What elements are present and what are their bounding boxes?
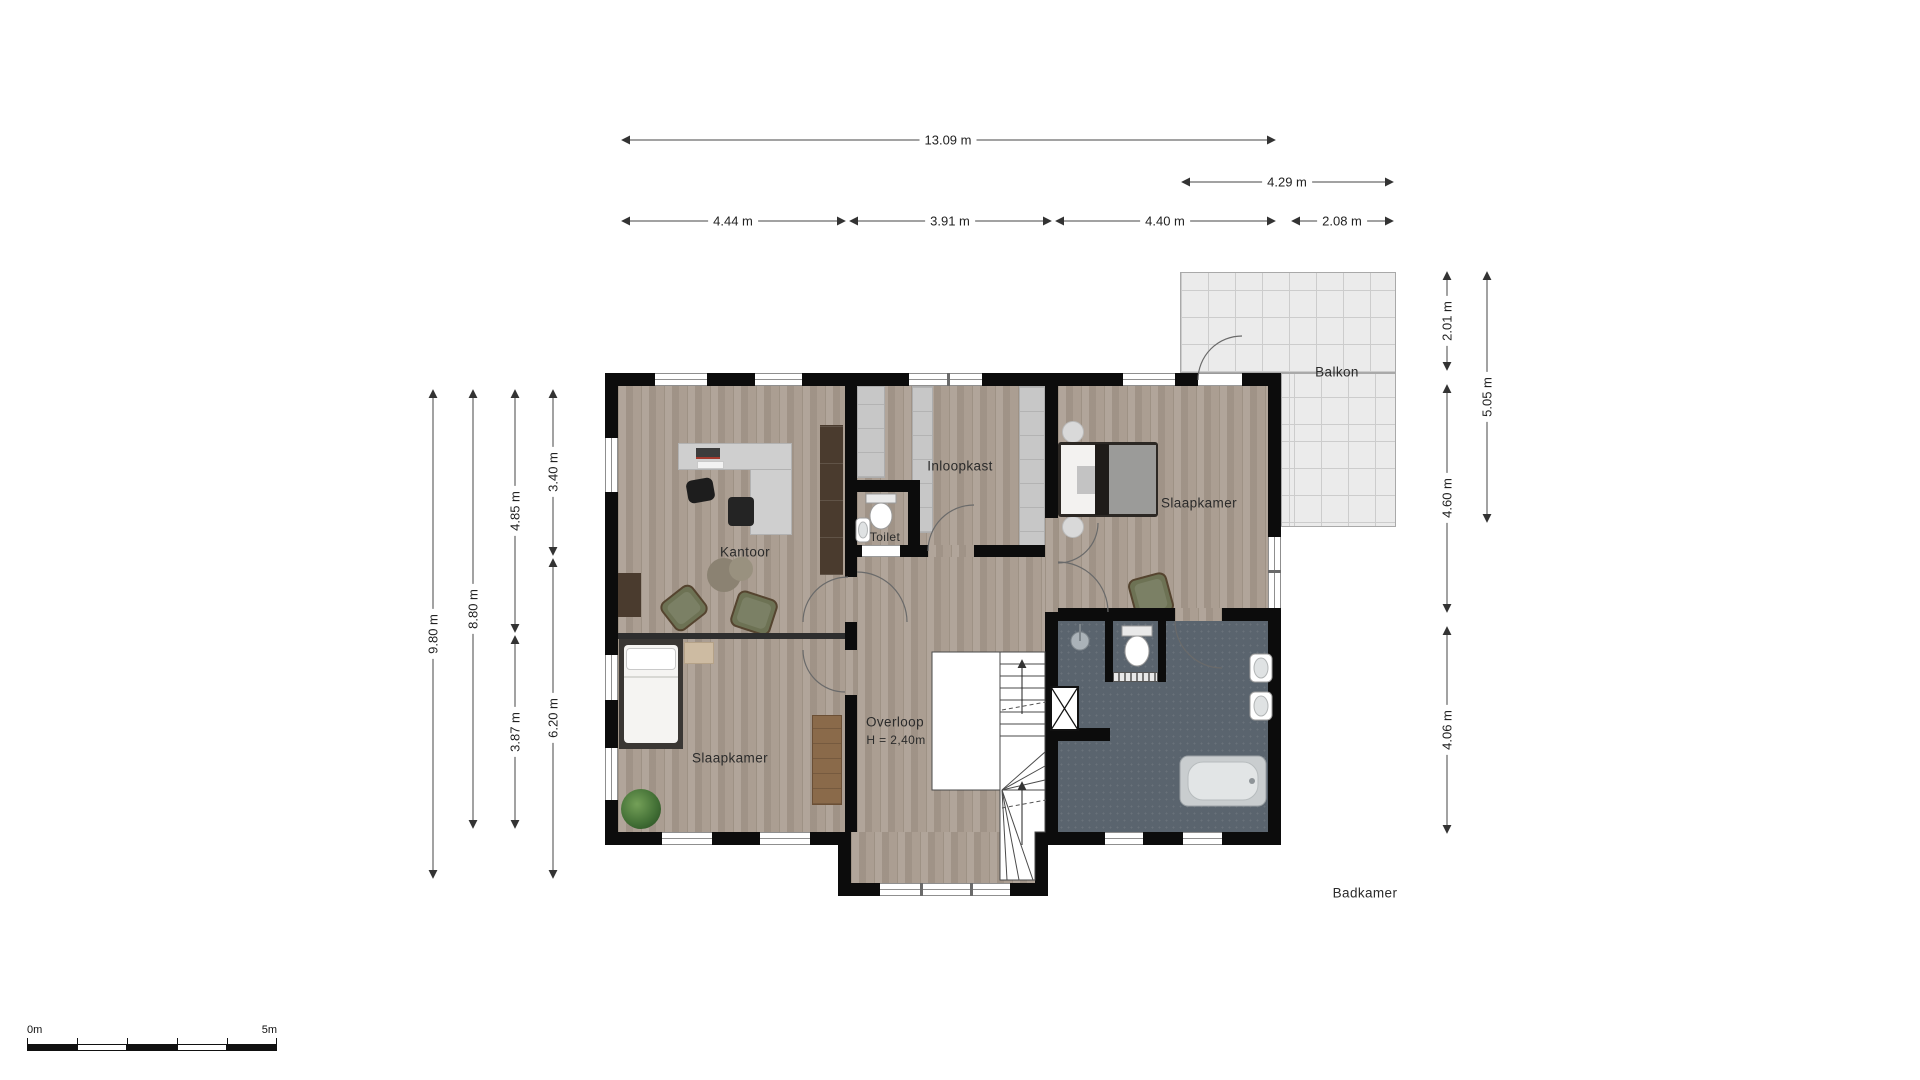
wall — [605, 832, 851, 845]
window — [605, 438, 618, 492]
wall — [974, 545, 1045, 557]
double-bed-headboard — [1095, 444, 1109, 515]
window — [760, 832, 810, 845]
cabinet — [820, 425, 843, 575]
floor-plan: Kantoor Toilet Inloopkast Slaapkamer Sla… — [0, 0, 1920, 1080]
window — [755, 373, 802, 386]
window — [1123, 373, 1175, 386]
wall — [900, 545, 920, 557]
room-label-slaapkamer-right: Slaapkamer — [1161, 496, 1237, 511]
dimension-label: 6.20 m — [546, 693, 561, 743]
stairwell — [1000, 790, 1045, 832]
office-chair — [685, 477, 716, 504]
dimension-label: 8.80 m — [466, 584, 481, 634]
wardrobe — [857, 386, 885, 478]
door-opening — [845, 650, 857, 695]
scale-start-label: 0m — [27, 1024, 42, 1036]
balcony-tiles — [1281, 373, 1396, 527]
sideboard — [618, 573, 641, 617]
dimension-label: 2.08 m — [1317, 214, 1367, 229]
room-label-inloopkast: Inloopkast — [927, 459, 993, 474]
toilet-door — [862, 545, 900, 557]
window — [1268, 537, 1281, 608]
dimension-label: 4.44 m — [708, 214, 758, 229]
window — [605, 748, 618, 800]
wall — [845, 695, 857, 832]
balcony-door-opening — [1198, 373, 1242, 386]
double-bed-blanket — [1077, 466, 1095, 494]
desk — [750, 469, 792, 535]
blanket-fold — [624, 676, 678, 678]
wall — [1058, 728, 1110, 741]
window — [880, 883, 1010, 896]
room-label-kantoor: Kantoor — [720, 545, 770, 560]
room-label-badkamer: Badkamer — [1333, 886, 1398, 901]
wall — [1105, 621, 1113, 682]
wall — [845, 622, 857, 650]
window — [655, 373, 707, 386]
room-label-toilet: Toilet — [870, 530, 900, 544]
room-label-overloop: Overloop — [866, 715, 924, 730]
bench — [684, 642, 714, 664]
wall — [1158, 621, 1166, 682]
dimension-label: 3.40 m — [546, 447, 561, 497]
dimension-label: 4.40 m — [1140, 214, 1190, 229]
pillow — [626, 648, 676, 670]
plant — [621, 789, 661, 829]
stairwell — [1000, 832, 1035, 880]
door-opening — [1175, 608, 1222, 621]
dimension-label: 5.05 m — [1480, 372, 1495, 422]
window — [1105, 832, 1143, 845]
dimension-label: 4.06 m — [1440, 705, 1455, 755]
stairwell — [932, 652, 1045, 790]
room-label-slaapkamer-left: Slaapkamer — [692, 751, 768, 766]
dimension-label: 9.80 m — [426, 609, 441, 659]
dimension-label: 4.29 m — [1262, 175, 1312, 190]
laptop — [696, 448, 720, 457]
side-table — [1062, 421, 1084, 443]
balcony-tiles — [1180, 272, 1396, 373]
dimension-label: 3.87 m — [508, 707, 523, 757]
laptop — [696, 457, 720, 459]
wall — [1045, 386, 1058, 518]
window — [909, 373, 982, 386]
wardrobe — [1019, 386, 1045, 557]
wall — [920, 545, 928, 557]
glass-partition — [1113, 672, 1158, 682]
wall — [1045, 608, 1175, 621]
wall — [1045, 612, 1058, 832]
wall — [845, 545, 862, 557]
scale-end-label: 5m — [262, 1024, 277, 1036]
room-label-balkon: Balkon — [1315, 365, 1359, 380]
door-opening — [845, 577, 857, 622]
wall — [1035, 832, 1281, 845]
dimension-label: 3.91 m — [925, 214, 975, 229]
scale-bar: 0m 5m — [27, 1038, 277, 1051]
office-chair — [728, 497, 754, 526]
rug — [729, 557, 753, 581]
door-opening — [1045, 518, 1058, 612]
side-table — [1062, 516, 1084, 538]
dimension-label: 2.01 m — [1440, 296, 1455, 346]
papers — [697, 461, 724, 469]
wall — [1222, 608, 1281, 621]
window — [1183, 832, 1222, 845]
window — [605, 655, 618, 700]
dimension-label: 4.85 m — [508, 486, 523, 536]
dimension-label: 4.60 m — [1440, 473, 1455, 523]
dresser — [812, 715, 842, 805]
window — [662, 832, 712, 845]
door-opening — [928, 545, 974, 557]
double-bed-duvet — [1109, 445, 1156, 514]
wall — [618, 633, 845, 639]
room-label-overloop-height: H = 2,40m — [866, 733, 925, 747]
dimension-label: 13.09 m — [920, 133, 977, 148]
